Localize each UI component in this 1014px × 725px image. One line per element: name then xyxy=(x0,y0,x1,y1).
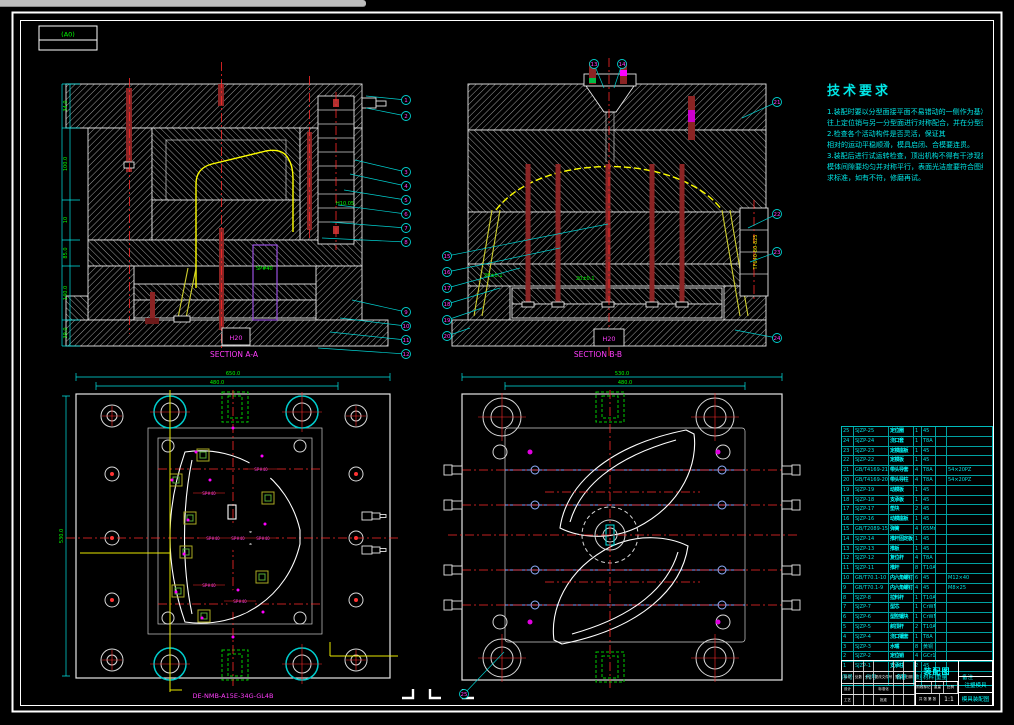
bom-row: 8SJZP-8拉料杆1T10A xyxy=(842,594,992,604)
tech-req-line: 求标准，如有不符，修磨再试。 xyxy=(827,173,983,184)
tech-req-line: 3.装配后进行试运转检查，顶出机构不得有干涉现象， xyxy=(827,151,983,162)
svg-text:SP#40: SP#40 xyxy=(202,491,216,496)
guide-holes-br xyxy=(478,393,739,682)
svg-text:22: 22 xyxy=(774,212,781,218)
cooling-lines xyxy=(444,465,800,610)
bom-row: 20GB/T4169-20带头导柱4T8A54×20PZ xyxy=(842,476,992,486)
sheet-format-label: (A0) xyxy=(61,31,75,39)
technical-requirements: 技术要求 1.装配时要以分型面接平面不易错动的一侧作为基准， 往上定位销与另一分… xyxy=(827,80,983,184)
svg-text:39.0: 39.0 xyxy=(63,327,69,338)
tech-req-line: 相对的运动平稳顺滑，模具启闭、合模要连贯。 xyxy=(827,140,983,151)
bom-row: 14SJZP-14推杆固定板145 xyxy=(842,535,992,545)
tf-spec-label: TF640-80-825 xyxy=(753,235,759,271)
drawing-name: 装配图 xyxy=(916,661,958,682)
svg-text:21: 21 xyxy=(774,100,781,106)
bom-row: 9GB/T70.1-9内六角螺钉445M8×25 xyxy=(842,584,992,594)
bom-row: 16SJZP-16动模座板145 xyxy=(842,515,992,525)
bill-of-materials: 25SJZP-25定位圈14524SJZP-24浇口套1T8A23SJZP-23… xyxy=(841,426,993,686)
plan-view-cavity-half: 530.0 480.0 xyxy=(444,371,800,688)
part-number: DE-NMB-A15E-34G-GL4B xyxy=(193,692,274,700)
bom-row: 13SJZP-13推板145 xyxy=(842,545,992,555)
svg-text:25: 25 xyxy=(461,692,468,698)
dim-480-br: 480.0 xyxy=(618,380,632,386)
svg-text:18: 18 xyxy=(444,302,451,308)
svg-text:17: 17 xyxy=(444,286,451,292)
bom-row: 19SJZP-19动模板145 xyxy=(842,486,992,496)
tech-req-line: 往上定位销与另一分型面进行对称配合，并在分型面留有间隙。 xyxy=(827,118,983,129)
part-outline-br xyxy=(553,430,694,644)
horizontal-scrollbar[interactable] xyxy=(0,0,366,7)
svg-text:SP#40: SP#40 xyxy=(206,536,220,541)
bom-row: 22SJZP-22定模板145 xyxy=(842,456,992,466)
svg-text:8: 8 xyxy=(404,240,408,246)
dim-530-left: 530.0 xyxy=(59,529,65,543)
bom-rows: 25SJZP-25定位圈14524SJZP-24浇口套1T8A23SJZP-23… xyxy=(842,427,992,672)
svg-text:SP#40: SP#40 xyxy=(233,599,247,604)
svg-text:20: 20 xyxy=(444,334,451,340)
svg-text:4: 4 xyxy=(404,184,408,190)
svg-text:13: 13 xyxy=(591,62,598,68)
section-view-b: TF640-80-825 20±0.1 20±0.1 H20 SECTION B… xyxy=(452,58,768,359)
h20-label-b: H20 xyxy=(602,335,615,343)
title-block-signatures: 标记处数 分区更改文件号 签字日期 设计 标准化 工艺 批准 xyxy=(842,661,916,705)
section-b-label: SECTION B-B xyxy=(574,350,622,359)
drawing-type: 模具装配图 xyxy=(959,693,992,705)
tech-req-line: 模体间隙要均匀并对称平行，表面光洁度要符合图纸要 xyxy=(827,162,983,173)
svg-text:85.0: 85.0 xyxy=(63,247,69,258)
bom-row: 11SJZP-11推杆8T10A xyxy=(842,564,992,574)
h20-label-a: H20 xyxy=(229,334,242,342)
dim-480-bl: 480.0 xyxy=(210,380,224,386)
tech-req-line: 2.检查各个活动构件是否灵活，保证其 xyxy=(827,129,983,140)
scale-value: 1:1 xyxy=(940,694,958,705)
tolerance-right: 20±0.1 xyxy=(576,276,595,282)
svg-text:10: 10 xyxy=(403,324,410,330)
svg-text:5: 5 xyxy=(404,198,408,204)
bom-row: 3SJZP-3水嘴8黄铜 xyxy=(842,643,992,653)
bom-row: 23SJZP-23定模座板145 xyxy=(842,447,992,457)
dim-530-br: 530.0 xyxy=(615,371,629,377)
bom-row: 25SJZP-25定位圈145 xyxy=(842,427,992,437)
bom-row: 17SJZP-17垫块245 xyxy=(842,505,992,515)
bom-row: 15GB/T2089-15弹簧465Mn xyxy=(842,525,992,535)
svg-text:24: 24 xyxy=(774,336,781,342)
title-block: 标记处数 分区更改文件号 签字日期 设计 标准化 工艺 批准 装配图 阶段标记 … xyxy=(841,660,993,706)
bom-row: 7SJZP-7型芯1CrWMn xyxy=(842,603,992,613)
svg-text:SP#40: SP#40 xyxy=(231,536,245,541)
section-a-label: SECTION A-A xyxy=(210,350,259,359)
bom-row: 24SJZP-24浇口套1T8A xyxy=(842,437,992,447)
bom-row: 10GB/T70.1-10内六角螺钉645M12×40 xyxy=(842,574,992,584)
svg-text:10: 10 xyxy=(63,217,69,223)
svg-text:2: 2 xyxy=(404,114,408,120)
svg-text:1: 1 xyxy=(404,98,408,104)
sp40-inserts: SP#40 SP#40 SP#40 SP#40 SP#40 SP#40 SP#4… xyxy=(193,456,279,614)
section-view-a: 34.0 100.0 10 85.0 140.0 39.0 SP#40 H10.… xyxy=(62,62,388,359)
svg-text:12: 12 xyxy=(403,352,410,358)
title-block-right: 注塑模具 模具装配图 xyxy=(959,661,992,705)
svg-text:11: 11 xyxy=(403,338,410,344)
cad-drawing-window: (A0) xyxy=(0,0,1014,725)
svg-text:SP#40: SP#40 xyxy=(202,583,216,588)
dim-650: 650.0 xyxy=(226,371,240,377)
svg-text:34.0: 34.0 xyxy=(63,100,69,111)
svg-text:7: 7 xyxy=(404,226,408,232)
water-nozzles xyxy=(362,512,386,554)
bom-row: 5SJZP-5斜顶杆2T10A xyxy=(842,623,992,633)
bom-row: 4SJZP-4浇口镶套1T8A xyxy=(842,633,992,643)
svg-text:SP#40: SP#40 xyxy=(256,536,270,541)
svg-text:9: 9 xyxy=(404,310,408,316)
svg-text:16: 16 xyxy=(444,270,451,276)
tech-req-line: 1.装配时要以分型面接平面不易错动的一侧作为基准， xyxy=(827,107,983,118)
svg-text:23: 23 xyxy=(774,250,781,256)
svg-text:15: 15 xyxy=(444,254,451,260)
svg-text:6: 6 xyxy=(404,212,408,218)
svg-text:3: 3 xyxy=(404,170,408,176)
svg-text:SP#40: SP#40 xyxy=(254,467,268,472)
bom-row: 12SJZP-12复位杆4T8A xyxy=(842,554,992,564)
svg-text:140.0: 140.0 xyxy=(63,286,69,300)
plan-view-moving-half: 650.0 480.0 530.0 xyxy=(59,371,400,700)
title-block-center: 装配图 阶段标记 重量 比例 共 张 第 张 1:1 xyxy=(916,661,959,705)
svg-text:19: 19 xyxy=(444,318,451,324)
bom-row: 6SJZP-6型腔镶块1CrWMn xyxy=(842,613,992,623)
svg-text:100.0: 100.0 xyxy=(63,157,69,171)
bom-row: 18SJZP-18支承板145 xyxy=(842,496,992,506)
sp40-label: SP#40 xyxy=(256,266,273,272)
bom-row: 21GB/T4169-21带头导套4T8A54×20PZ xyxy=(842,466,992,476)
org-name: 注塑模具 xyxy=(959,677,992,693)
tech-req-title: 技术要求 xyxy=(827,80,983,99)
svg-text:14: 14 xyxy=(619,62,626,68)
guide-pillar-block xyxy=(318,96,354,244)
